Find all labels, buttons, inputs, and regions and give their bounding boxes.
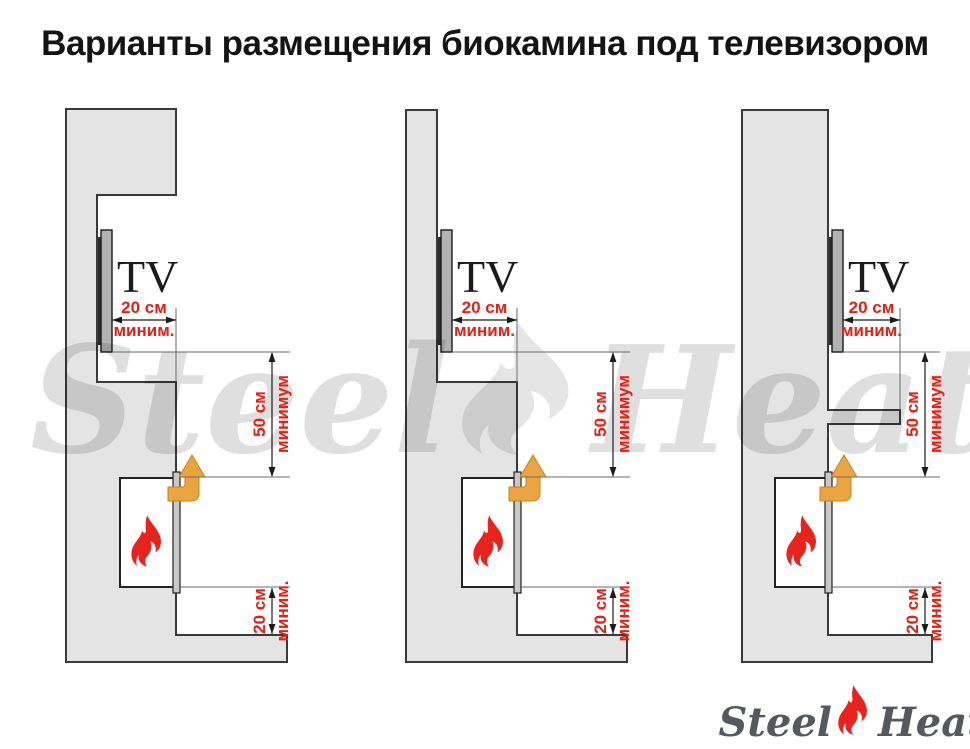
dim-middle-qualifier: минимум — [273, 375, 292, 453]
infographic-canvas: Варианты размещения биокамина под телеви… — [0, 0, 970, 749]
dim-bottom-value: 20 см — [250, 588, 269, 634]
logo-steel-text: Steel — [719, 699, 832, 746]
dim-bottom-value: 20 см — [591, 588, 610, 634]
dim-middle-value: 50 см — [591, 391, 610, 437]
dim-top-qualifier: миним. — [113, 321, 174, 340]
tv-label: TV — [848, 251, 909, 302]
dim-top-qualifier: миним. — [454, 321, 515, 340]
dim-top-qualifier: миним. — [841, 321, 902, 340]
tv-label: TV — [457, 251, 518, 302]
watermark-steel-text: Steel — [30, 313, 450, 487]
dim-bottom-qualifier: миним. — [273, 580, 292, 641]
dim-middle-qualifier: минимум — [614, 375, 633, 453]
tv-label: TV — [117, 251, 178, 302]
diagram-scene: SteelHeat20 смминим.50 смминимум20 сммин… — [0, 0, 970, 749]
dim-middle-qualifier: минимум — [926, 375, 945, 453]
dim-bottom-qualifier: миним. — [614, 580, 633, 641]
dim-middle-value: 50 см — [250, 391, 269, 437]
logo-heat-text: Heat — [877, 699, 970, 746]
brand-logo: SteelHeat — [719, 685, 970, 746]
logo-flame-icon — [838, 685, 867, 735]
dim-middle-value: 50 см — [903, 391, 922, 437]
dim-bottom-qualifier: миним. — [926, 580, 945, 641]
dim-bottom-value: 20 см — [903, 588, 922, 634]
